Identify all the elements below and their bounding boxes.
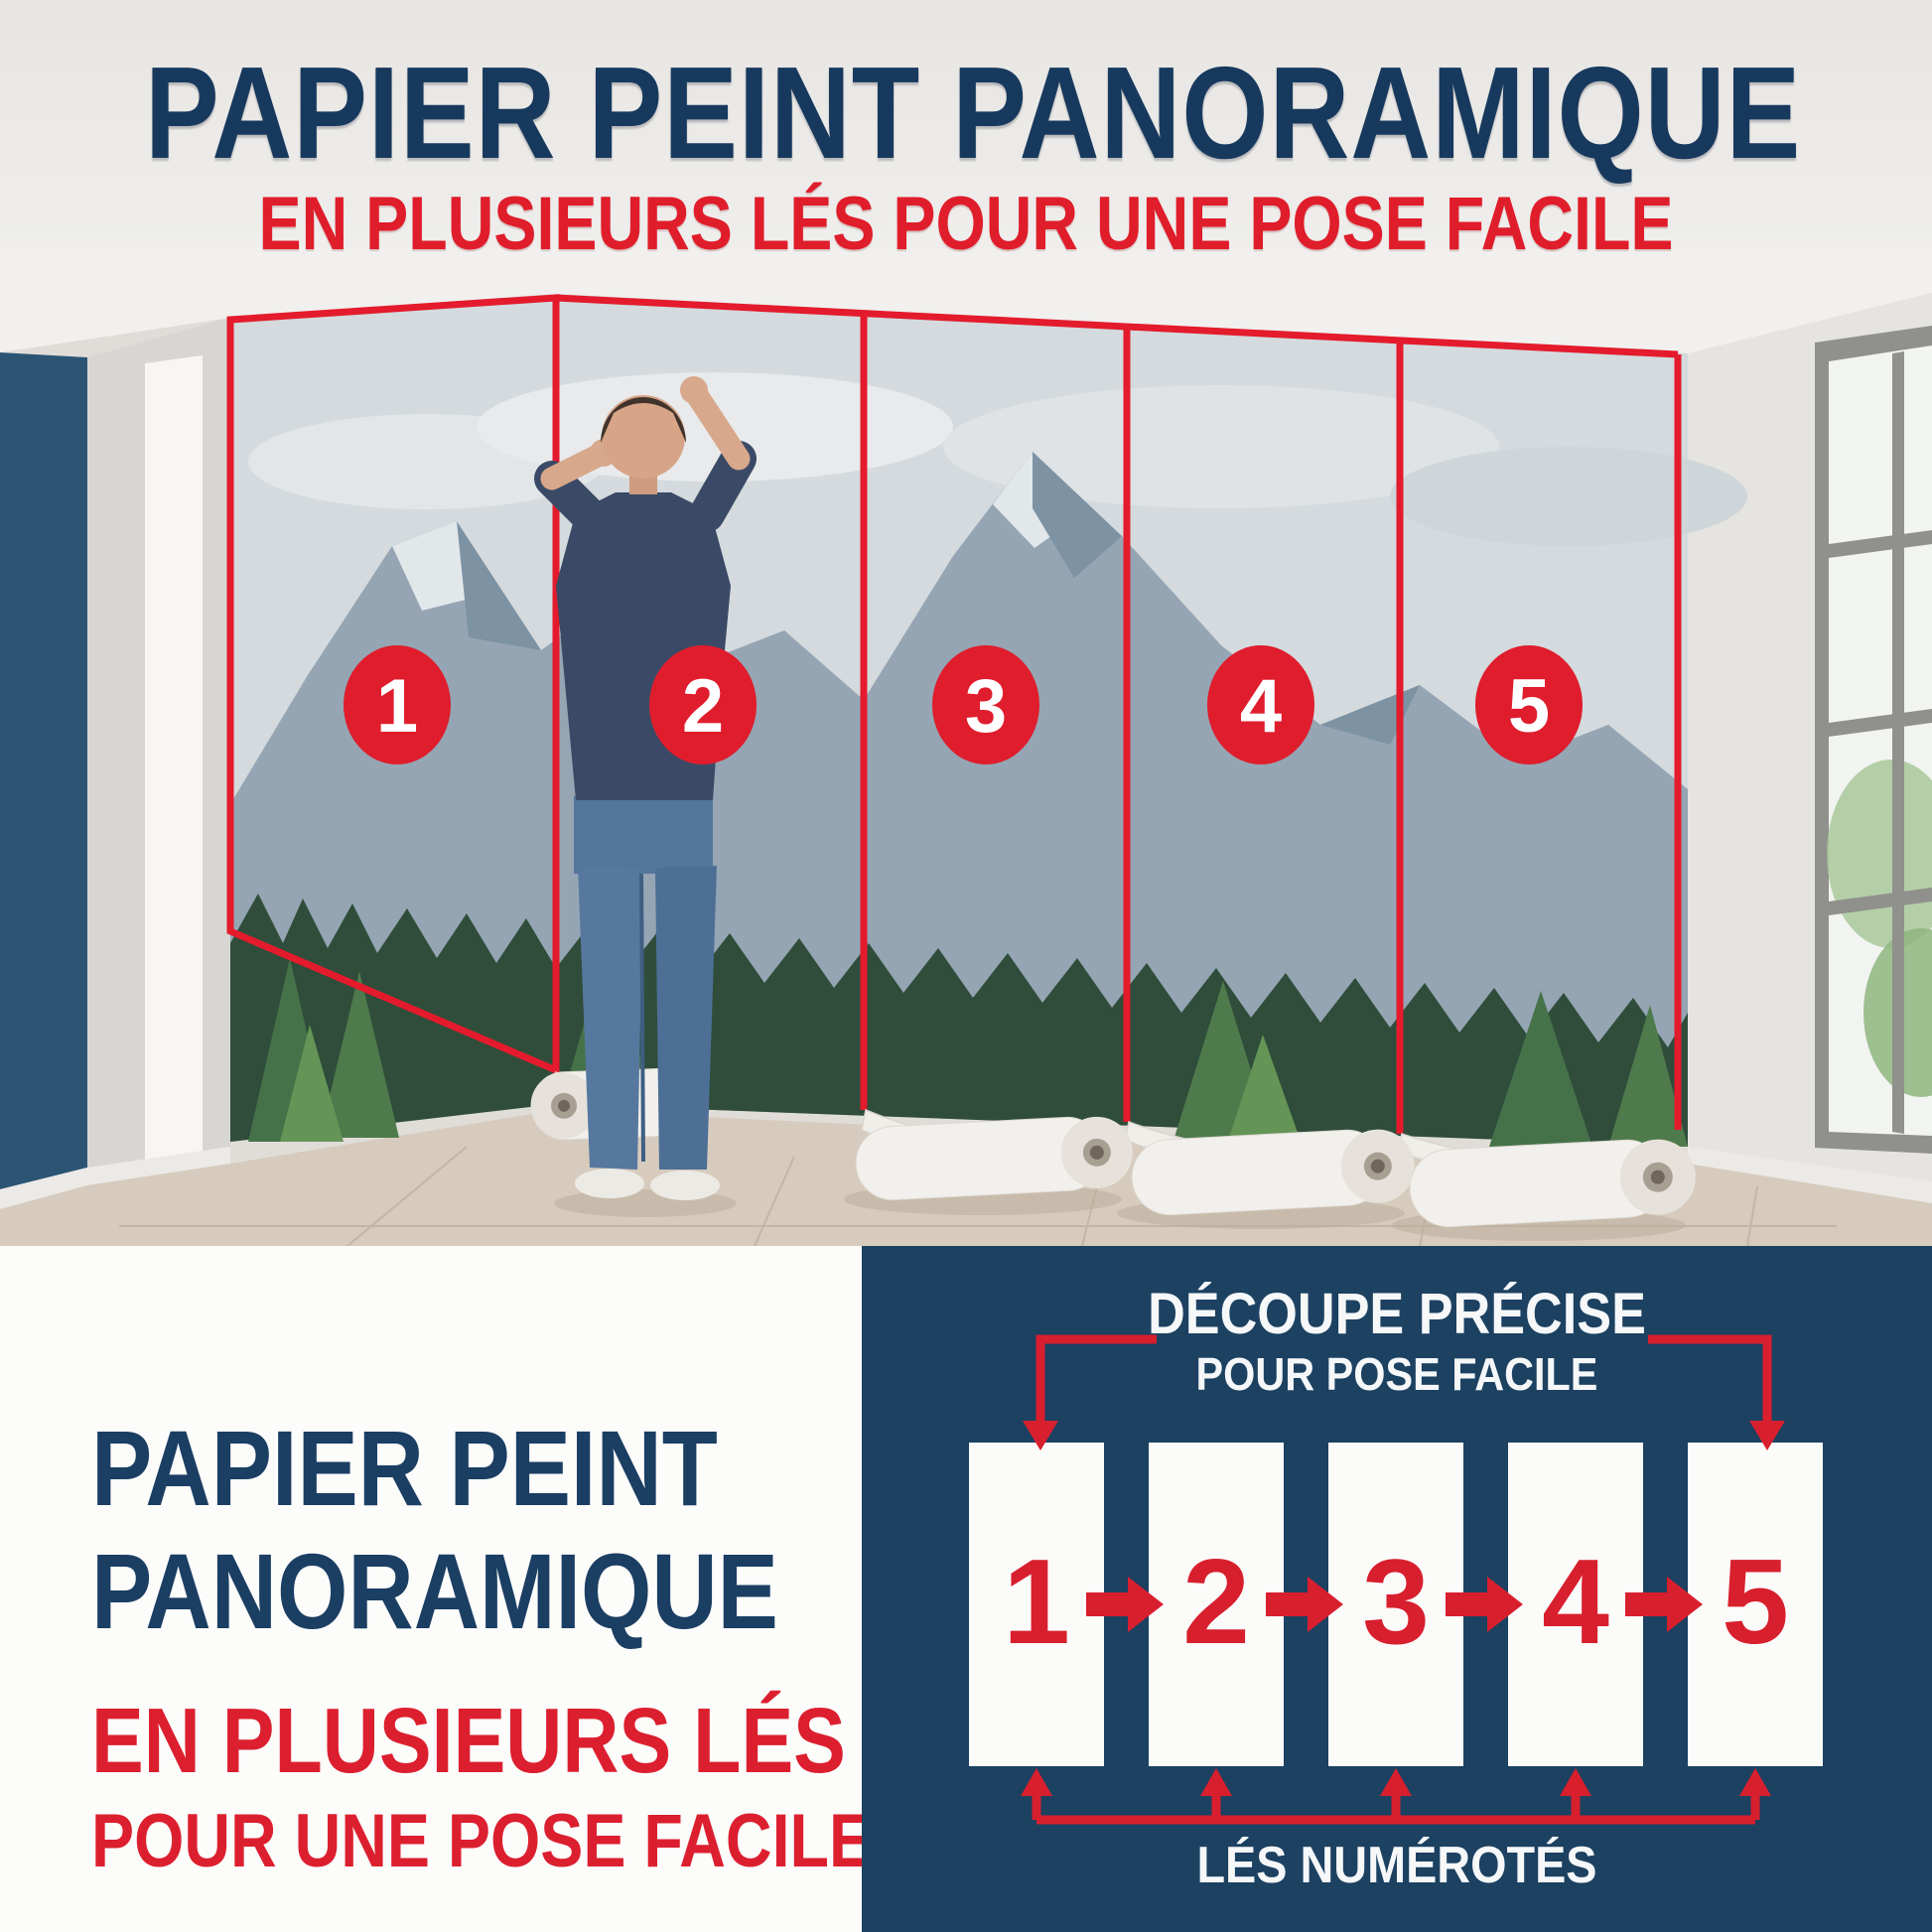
diagram-caption: LÉS NUMÉROTÉS <box>915 1840 1878 1891</box>
page-title: PAPIER PEINT PANORAMIQUE <box>145 48 1787 179</box>
diagram-number-5: 5 <box>1722 1534 1789 1669</box>
up-arrow-icon <box>1560 1768 1591 1796</box>
shoe-right <box>650 1171 720 1200</box>
photo-scene: 1 2 3 4 5 <box>0 248 1932 1246</box>
badge-number-2: 2 <box>682 664 724 749</box>
up-arrow-icon <box>1200 1768 1232 1796</box>
page-subtitle: EN PLUSIEURS LÉS POUR UNE POSE FACILE <box>145 187 1787 262</box>
bottom-bracket <box>1036 1794 1755 1820</box>
right-hand <box>680 376 708 404</box>
shoe-left <box>575 1169 644 1198</box>
window <box>1815 326 1932 1154</box>
diagram-number-4: 4 <box>1542 1534 1609 1669</box>
diagram-number-3: 3 <box>1362 1534 1430 1669</box>
bottom-left-panel: PAPIER PEINT PANORAMIQUE EN PLUSIEURS LÉ… <box>0 1246 862 1932</box>
accent-wall <box>0 352 87 1189</box>
up-arrow-icon <box>1380 1768 1412 1796</box>
badge-number-1: 1 <box>376 664 418 749</box>
badge-number-3: 3 <box>965 664 1007 749</box>
badge-number-5: 5 <box>1508 664 1550 749</box>
badge-number-4: 4 <box>1240 664 1282 749</box>
bottom-subtitle-line1: EN PLUSIEURS LÉS <box>91 1695 846 1787</box>
diagram-title-line2: POUR POSE FACILE <box>915 1351 1878 1397</box>
diagram-panel: 1 2 3 4 5 <box>862 1246 1932 1932</box>
head <box>602 395 685 479</box>
bottom-title-line1: PAPIER PEINT <box>91 1415 718 1522</box>
up-arrow-icon <box>1739 1768 1771 1796</box>
doorway <box>145 355 203 1164</box>
infographic-canvas: PAPIER PEINT PANORAMIQUE EN PLUSIEURS LÉ… <box>0 0 1932 1932</box>
diagram-number-1: 1 <box>1003 1534 1070 1669</box>
bottom-subtitle-line2: POUR UNE POSE FACILE <box>91 1804 872 1879</box>
header-section: PAPIER PEINT PANORAMIQUE EN PLUSIEURS LÉ… <box>0 0 1932 248</box>
bottom-arrowheads <box>1021 1768 1771 1796</box>
diagram-number-2: 2 <box>1182 1534 1250 1669</box>
diagram-title-line1: DÉCOUPE PRÉCISE <box>915 1286 1878 1343</box>
bottom-title-line2: PANORAMIQUE <box>91 1538 778 1645</box>
up-arrow-icon <box>1021 1768 1052 1796</box>
